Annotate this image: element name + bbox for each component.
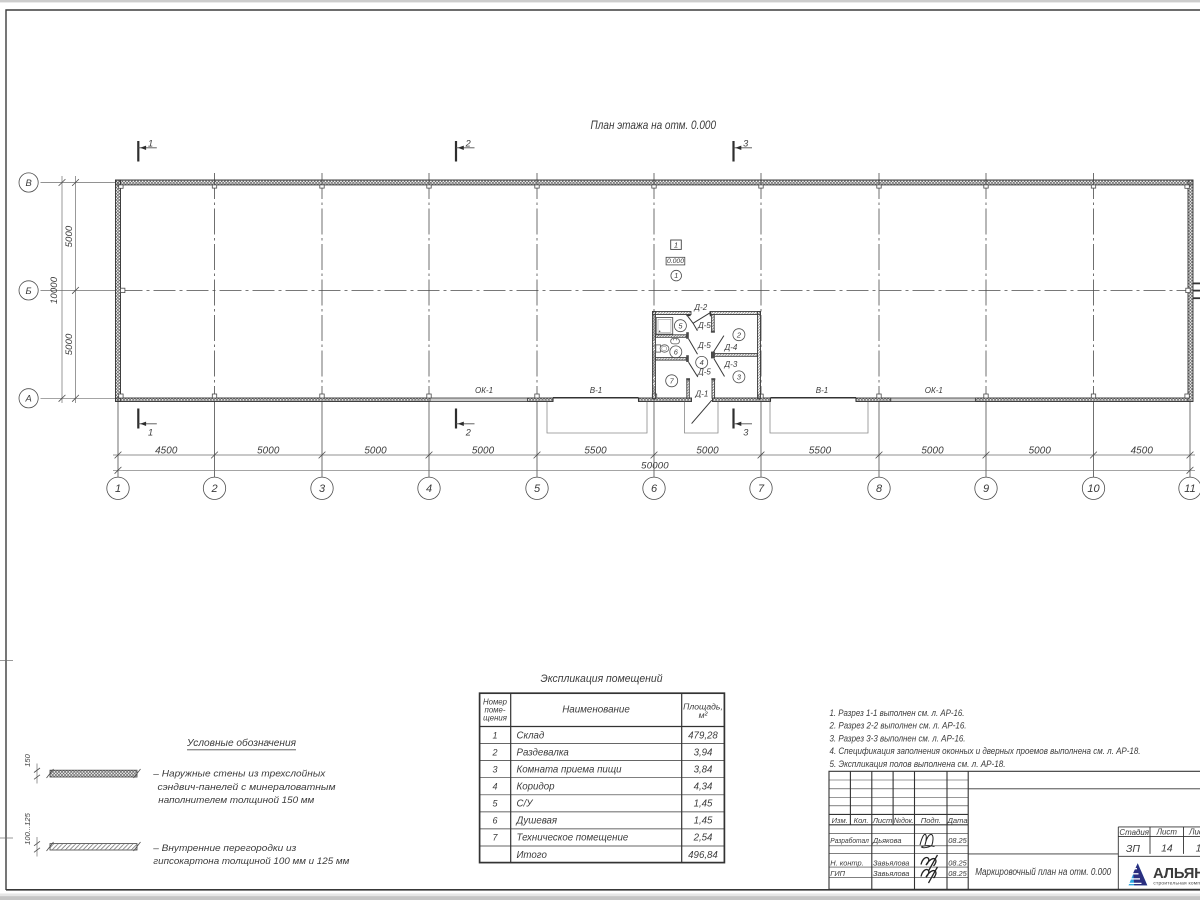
svg-text:В: В: [25, 177, 31, 188]
svg-text:5500: 5500: [584, 446, 607, 457]
svg-text:3: 3: [743, 427, 749, 437]
svg-text:2. Разрез 2-2 выполнен см. л.: 2. Разрез 2-2 выполнен см. л. АР-16.: [829, 721, 967, 732]
svg-text:ГИП: ГИП: [830, 869, 845, 878]
svg-text:8: 8: [876, 483, 883, 495]
svg-text:АЛЬЯНС: АЛЬЯНС: [1153, 866, 1200, 882]
svg-text:3: 3: [743, 138, 749, 148]
svg-text:№док.: №док.: [894, 816, 914, 825]
svg-text:м²: м²: [699, 710, 709, 720]
svg-text:4: 4: [700, 358, 704, 367]
svg-text:2: 2: [465, 427, 471, 437]
svg-text:ОК-1: ОК-1: [475, 386, 493, 395]
svg-text:А: А: [24, 393, 31, 404]
svg-text:Лист: Лист: [872, 816, 893, 825]
svg-text:2: 2: [491, 747, 497, 757]
svg-text:Наименование: Наименование: [562, 705, 630, 716]
svg-text:2: 2: [465, 138, 471, 148]
svg-text:Техническое помещение: Техническое помещение: [517, 833, 629, 844]
svg-text:9: 9: [983, 483, 989, 495]
svg-text:Склад: Склад: [517, 730, 545, 741]
svg-text:08.25: 08.25: [948, 836, 967, 845]
svg-text:4: 4: [426, 483, 432, 495]
svg-text:4. Спецификация заполнения око: 4. Спецификация заполнения оконных и две…: [830, 746, 1141, 757]
svg-text:– Наружные стены из трехслойны: – Наружные стены из трехслойных: [152, 769, 326, 780]
svg-text:С/У: С/У: [517, 799, 534, 810]
svg-text:1: 1: [492, 730, 497, 740]
svg-text:В-1: В-1: [816, 386, 828, 395]
svg-text:5000: 5000: [696, 446, 719, 457]
svg-text:Душевая: Душевая: [516, 816, 558, 827]
svg-text:4500: 4500: [1131, 446, 1154, 457]
svg-text:Комната приема пищи: Комната приема пищи: [517, 764, 623, 775]
svg-text:1: 1: [148, 138, 153, 148]
svg-text:Д-5: Д-5: [697, 321, 711, 330]
svg-text:2: 2: [736, 330, 741, 339]
svg-text:3,84: 3,84: [694, 764, 713, 775]
svg-text:2,54: 2,54: [693, 833, 713, 844]
svg-text:4500: 4500: [155, 446, 178, 457]
svg-text:479,28: 479,28: [688, 730, 718, 741]
svg-text:Д-4: Д-4: [724, 343, 738, 352]
svg-text:щения: щения: [483, 714, 508, 723]
svg-text:Д-1: Д-1: [695, 390, 709, 399]
svg-text:3: 3: [319, 483, 326, 495]
svg-text:Подп.: Подп.: [921, 816, 941, 825]
svg-text:4: 4: [492, 782, 497, 792]
svg-text:Лист: Лист: [1156, 828, 1178, 837]
svg-text:5: 5: [534, 483, 541, 495]
svg-text:10000: 10000: [49, 276, 60, 304]
svg-text:1: 1: [115, 483, 121, 495]
svg-text:14: 14: [1161, 843, 1173, 854]
svg-text:50000: 50000: [641, 461, 669, 472]
svg-text:гипсокартона толщиной 100 мм и: гипсокартона толщиной 100 мм и 125 мм: [153, 856, 349, 867]
svg-text:Экспликация помещений: Экспликация помещений: [541, 673, 663, 685]
svg-text:Коридор: Коридор: [517, 782, 556, 793]
svg-text:5000: 5000: [1029, 446, 1052, 457]
svg-text:10: 10: [1087, 483, 1100, 495]
svg-text:наполнителем толщиной 150 мм: наполнителем толщиной 150 мм: [158, 795, 314, 806]
svg-text:496,84: 496,84: [688, 850, 718, 861]
svg-text:08.25: 08.25: [948, 869, 967, 878]
svg-text:Маркировочный план на отм. 0.0: Маркировочный план на отм. 0.000: [975, 867, 1111, 878]
svg-text:5000: 5000: [364, 446, 387, 457]
svg-text:Дьякова: Дьякова: [872, 836, 901, 845]
svg-text:Н. контр.: Н. контр.: [830, 859, 863, 868]
svg-text:Д-3: Д-3: [724, 360, 738, 369]
svg-text:100...125: 100...125: [23, 812, 32, 844]
svg-text:5500: 5500: [809, 446, 832, 457]
svg-text:Д-5: Д-5: [697, 341, 711, 350]
svg-text:3. Разрез 3-3 выполнен см. л.: 3. Разрез 3-3 выполнен см. л. АР-16.: [830, 733, 966, 744]
svg-text:6: 6: [651, 483, 658, 495]
svg-text:5000: 5000: [257, 446, 280, 457]
svg-text:Б: Б: [26, 285, 32, 296]
svg-text:Дата: Дата: [947, 816, 968, 825]
svg-text:1: 1: [674, 240, 678, 249]
svg-text:11: 11: [1184, 483, 1195, 495]
svg-text:сэндвич-панелей с минераловатн: сэндвич-панелей с минераловатным: [158, 782, 336, 793]
svg-text:7: 7: [758, 483, 765, 495]
svg-text:Условные обозначения: Условные обозначения: [186, 738, 297, 749]
svg-text:Изм.: Изм.: [832, 816, 848, 825]
svg-text:Кол.: Кол.: [854, 816, 869, 825]
svg-text:1: 1: [148, 427, 153, 437]
svg-text:Завьялова: Завьялова: [873, 859, 909, 868]
svg-text:4,34: 4,34: [694, 782, 713, 793]
svg-text:Итого: Итого: [517, 850, 548, 861]
svg-text:5000: 5000: [64, 225, 75, 247]
svg-text:5000: 5000: [472, 446, 495, 457]
svg-text:1,45: 1,45: [694, 799, 713, 810]
svg-text:1: 1: [1196, 843, 1200, 854]
svg-text:1,45: 1,45: [694, 816, 713, 827]
svg-text:ОК-1: ОК-1: [925, 386, 943, 395]
svg-text:Лис: Лис: [1188, 828, 1200, 837]
svg-text:Д-2: Д-2: [693, 303, 707, 312]
svg-text:3,94: 3,94: [694, 747, 713, 758]
svg-text:строительная компания: строительная компания: [1153, 882, 1200, 887]
svg-text:1: 1: [674, 271, 678, 280]
svg-text:3: 3: [492, 764, 497, 774]
svg-text:6: 6: [492, 816, 497, 826]
svg-text:5. Экспликация полов выполнена: 5. Экспликация полов выполнена см. л. АР…: [830, 759, 1006, 770]
svg-text:Завьялова: Завьялова: [873, 869, 909, 878]
svg-text:150: 150: [23, 753, 32, 766]
svg-text:Д-5: Д-5: [697, 368, 711, 377]
svg-text:В-1: В-1: [590, 386, 602, 395]
svg-text:5000: 5000: [921, 446, 944, 457]
svg-text:0.000: 0.000: [667, 258, 684, 265]
svg-text:2: 2: [210, 483, 217, 495]
svg-text:Стадия: Стадия: [1119, 828, 1149, 837]
svg-text:План этажа на отм. 0.000: План этажа на отм. 0.000: [591, 119, 717, 132]
svg-text:– Внутренние перегородки из: – Внутренние перегородки из: [152, 843, 297, 854]
svg-text:Раздевалка: Раздевалка: [517, 747, 570, 758]
svg-text:5000: 5000: [64, 333, 75, 355]
svg-text:08.25: 08.25: [948, 859, 967, 868]
svg-text:Разработал: Разработал: [830, 836, 869, 845]
svg-text:1. Разрез 1-1 выполнен см. л.: 1. Разрез 1-1 выполнен см. л. АР-16.: [830, 708, 965, 719]
svg-text:ЗП: ЗП: [1126, 844, 1140, 855]
